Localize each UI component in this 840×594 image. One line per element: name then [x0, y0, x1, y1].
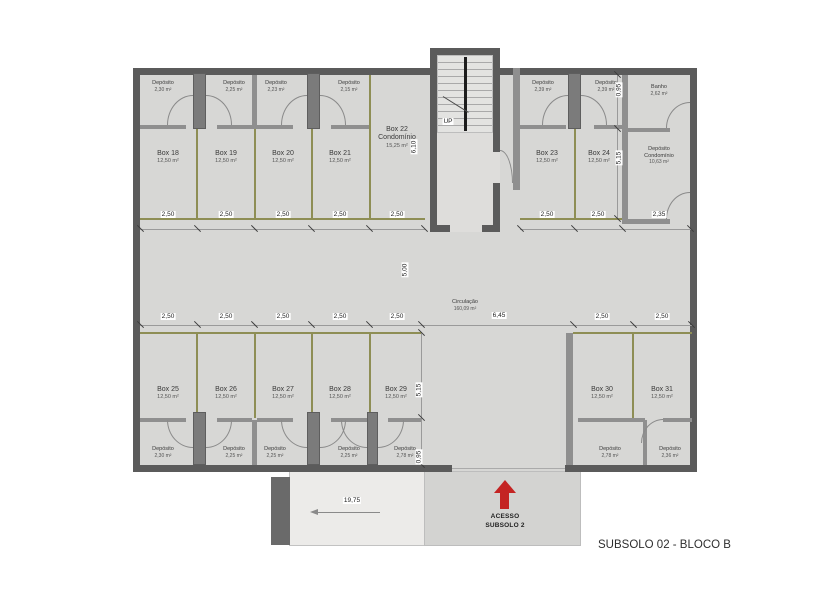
banho-label: Banho 2,62 m²: [651, 84, 668, 97]
deposito-label: Depósito 2,25 m²: [338, 446, 360, 459]
pillar: [307, 412, 320, 465]
stair-handrail: [464, 57, 467, 131]
exterior-wall-bottom-left: [133, 465, 452, 472]
deposito-wall: [140, 125, 186, 129]
box-30-label: Box 30 12,50 m²: [591, 386, 613, 401]
dim-label: 2,50: [219, 313, 234, 320]
ramp-arrow-head: [310, 509, 318, 515]
dim-label: 2,50: [595, 313, 610, 320]
stair-wall-left: [430, 48, 437, 232]
deposito-label: Depósito 2,25 m²: [223, 80, 245, 93]
dimension-line: [520, 229, 692, 230]
box-20-label: Box 20 12,50 m²: [272, 150, 294, 165]
dim-label-vertical: 5,00: [402, 263, 409, 278]
dim-label: 2,50: [161, 313, 176, 320]
box-18-label: Box 18 12,50 m²: [157, 150, 179, 165]
dim-label: 2,50: [390, 313, 405, 320]
deposito-wall: [663, 418, 692, 422]
box-23-label: Box 23 12,50 m²: [536, 150, 558, 165]
dimension-line: [140, 325, 692, 326]
pillar: [193, 412, 206, 465]
dim-label-vertical: 5,15: [616, 151, 623, 166]
box-separator: [196, 334, 198, 418]
pillar: [307, 73, 320, 129]
box-26-label: Box 26 12,50 m²: [215, 386, 237, 401]
box-separator: [311, 334, 313, 418]
block-left-wall: [566, 333, 573, 465]
stair-wall-bottom-left-stub: [430, 225, 450, 232]
dim-label: 2,50: [161, 211, 176, 218]
dim-label-vertical: 6,10: [411, 140, 418, 155]
exterior-wall-top-left: [133, 68, 430, 75]
dimension-line-vertical: [421, 333, 422, 465]
exterior-wall-left: [133, 68, 140, 472]
deposito-label: Depósito 2,30 m²: [152, 446, 174, 459]
deposito-label: Depósito 2,23 m²: [265, 80, 287, 93]
box-29-label: Box 29 12,50 m²: [385, 386, 407, 401]
box-27-label: Box 27 12,50 m²: [272, 386, 294, 401]
dim-label: 2,50: [219, 211, 234, 218]
deposito-label: Depósito 2,78 m²: [394, 446, 416, 459]
deposito-wall: [331, 125, 369, 129]
deposito-wall: [578, 418, 645, 422]
dim-label: 2,50: [276, 313, 291, 320]
deposito-label: Depósito 2,36 m²: [659, 446, 681, 459]
deposito-label: Depósito 2,78 m²: [599, 446, 621, 459]
deposito-wall: [217, 125, 254, 129]
exterior-wall-right: [690, 68, 697, 472]
ramp-dim-line: [318, 512, 380, 513]
box-separator: [574, 129, 576, 218]
exterior-wall-top-right: [500, 68, 697, 75]
dim-label-vertical: 0,95: [416, 450, 423, 465]
dim-label: 6,45: [492, 312, 507, 319]
right-section-bottom-wall: [628, 219, 670, 224]
dim-label-vertical: 5,15: [416, 383, 423, 398]
box-separator: [254, 334, 256, 418]
deposito-wall: [520, 125, 566, 129]
box-28-label: Box 28 12,50 m²: [329, 386, 351, 401]
ramp-retaining-wall: [271, 477, 290, 545]
access-label-line2: SUBSOLO 2: [485, 522, 524, 529]
banho-wall: [628, 128, 670, 132]
ramp-threshold-line: [452, 468, 565, 469]
dim-label: 2,50: [333, 211, 348, 218]
deposito-wall: [257, 125, 293, 129]
access-arrow-head: [494, 480, 516, 493]
box-25-label: Box 25 12,50 m²: [157, 386, 179, 401]
pillar: [367, 412, 378, 465]
box-separator: [254, 129, 256, 218]
dim-label: 2,35: [652, 211, 667, 218]
box-separator: [369, 75, 371, 218]
box-separator: [196, 129, 198, 218]
box-separator: [632, 334, 634, 418]
deposito-label: Depósito 2,39 m²: [595, 80, 617, 93]
box-24-label: Box 24 12,50 m²: [588, 150, 610, 165]
pillar: [193, 73, 206, 129]
box-front-line: [140, 332, 422, 334]
deposito-label: Depósito 2,30 m²: [152, 80, 174, 93]
deposito-label: Depósito 2,15 m²: [338, 80, 360, 93]
dim-label: 2,50: [333, 313, 348, 320]
box-21-label: Box 21 12,50 m²: [329, 150, 351, 165]
ramp-dim-label: 19,75: [343, 497, 361, 504]
box-front-line: [520, 218, 622, 220]
deposito-wall: [252, 420, 257, 465]
box-separator: [311, 129, 313, 218]
dim-label: 2,50: [276, 211, 291, 218]
box-31-label: Box 31 12,50 m²: [651, 386, 673, 401]
deposito-label: Depósito 2,25 m²: [223, 446, 245, 459]
deposito-label: Depósito 2,25 m²: [264, 446, 286, 459]
box-19-label: Box 19 12,50 m²: [215, 150, 237, 165]
box-separator: [369, 334, 371, 418]
deposito-condominio-label: Depósito Condomínio 10,63 m²: [644, 146, 674, 165]
exterior-wall-bottom-right: [565, 465, 697, 472]
dim-label: 2,50: [390, 211, 405, 218]
pillar: [568, 73, 581, 129]
stair-wall-bottom-right-stub: [482, 225, 500, 232]
deposito-wall: [252, 75, 257, 129]
dim-label: 2,50: [655, 313, 670, 320]
floor-plan: UP Depósito 2,30 m² Depósito 2,25 m² Dep…: [0, 0, 840, 594]
dim-label: 2,50: [540, 211, 555, 218]
stair-wall-top: [430, 48, 500, 55]
dim-label-vertical: 0,95: [616, 83, 623, 98]
stair-up-label: UP: [442, 118, 453, 125]
box-front-line: [140, 218, 425, 220]
drawing-title: SUBSOLO 02 - BLOCO B: [598, 539, 731, 551]
access-label-line1: ACESSO: [491, 513, 520, 520]
circulacao-label: Circulação 160,09 m²: [452, 299, 478, 312]
access-arrow-shaft: [500, 493, 509, 509]
corridor-wall: [513, 68, 520, 190]
dim-label: 2,50: [591, 211, 606, 218]
right-section-wall: [622, 75, 628, 224]
deposito-label: Depósito 2,39 m²: [532, 80, 554, 93]
stair-wall-right-upper: [493, 48, 500, 152]
dimension-line: [140, 229, 425, 230]
